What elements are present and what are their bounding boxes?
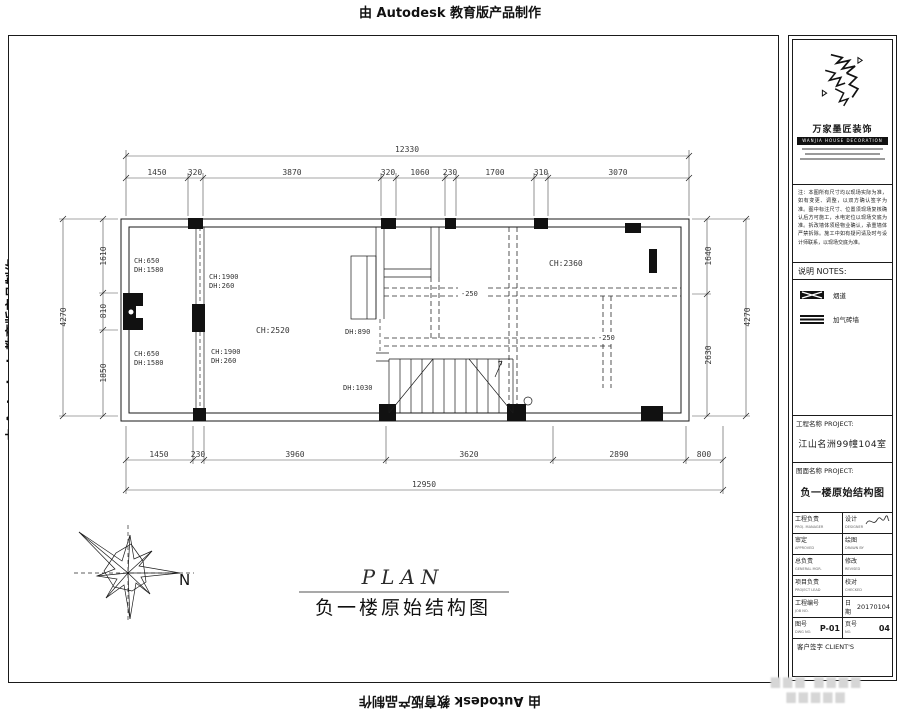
company-logo (811, 45, 875, 117)
dim-top-seg: 3870 (282, 168, 301, 177)
dim-top-seg: 320 (381, 168, 396, 177)
cell-label: 项目负责 (795, 577, 821, 586)
dim-left-seg: 1610 (99, 246, 108, 265)
project-name-value: 江山名洲99幢104室 (793, 437, 892, 450)
table-row: 项目负责PROJECT LEAD 校对CHECKED (793, 576, 892, 597)
table-row: 总负责GENERAL MGR. 修改REVISED (793, 555, 892, 576)
cell-label: 绘图 (845, 535, 864, 544)
client-signature-row: 客户签字 CLIENT'S (793, 639, 892, 676)
cell-sublabel: NO. (845, 630, 857, 634)
drawing-caption: PLAN 负一楼原始结构图 (299, 565, 509, 619)
edu-banner-top: 由 Autodesk 教育版产品制作 (0, 2, 900, 21)
company-address-line (805, 153, 880, 155)
legend-panel: 烟道 加气砖墙 (793, 280, 892, 416)
dim-right-seg: 2630 (704, 345, 713, 364)
cell-sublabel: PROJ. MANAGER (795, 525, 823, 529)
cell-sublabel: PROJECT LEAD (795, 588, 821, 592)
cell-sublabel: APPROVED (795, 546, 814, 550)
cell-label: 工程编号 (795, 598, 819, 607)
cell-dwg-no: 图号DWG NO. P-01 (793, 618, 842, 638)
dim-bottom-seg: 1450 (149, 450, 168, 459)
cell-sublabel: DWG NO. (795, 630, 811, 634)
company-logo-panel: 万家墨匠装饰 WANJIA HOUSE DECORATION (793, 40, 892, 185)
title-block: 万家墨匠装饰 WANJIA HOUSE DECORATION 注：本图所有尺寸均… (788, 35, 897, 681)
cell-proj-manager: 工程负责PROJ. MANAGER (793, 513, 842, 533)
cell-sublabel: GENERAL MGR. (795, 567, 822, 571)
cell-project-lead: 项目负责PROJECT LEAD (793, 576, 842, 596)
cell-label: 审定 (795, 535, 814, 544)
caption-plan: PLAN (361, 565, 445, 589)
dimension-left: 1610 810 1850 4270 (59, 216, 118, 419)
cell-designer: 设计DESIGNER (842, 513, 892, 533)
label-left-window-top2: DH:1580 (134, 266, 164, 274)
table-row: 图号DWG NO. P-01 页号NO. 04 (793, 618, 892, 639)
dim-right-overall: 4270 (743, 307, 752, 326)
cell-checked: 校对CHECKED (842, 576, 892, 596)
notes-paragraph: 注：本图所有尺寸均以现场实际为准，如有变更、调整，以双方确认签字为准。图中标注尺… (793, 185, 892, 263)
cell-page-no: 页号NO. 04 (842, 618, 892, 638)
sheet-name-label: 图面名称 PROJECT: (793, 463, 892, 475)
columns (188, 218, 663, 421)
dim-right-seg: 1640 (704, 246, 713, 265)
page-no-value: 04 (879, 624, 890, 633)
cell-label: 校对 (845, 577, 862, 586)
dimension-bottom: 1450 230 3960 3620 2890 800 12950 (123, 426, 726, 494)
legend-label: 烟道 (833, 290, 846, 300)
label-level-a: -250 (461, 290, 478, 298)
company-banner: WANJIA HOUSE DECORATION (797, 137, 888, 145)
north-label: N (179, 571, 190, 589)
faint-watermark-line: ▆▆▆ ▆▆▆▆ (738, 674, 896, 689)
cell-approved: 审定APPROVED (793, 534, 842, 554)
cell-sublabel: JOB NO. (795, 609, 819, 613)
cell-label: 日期 (845, 598, 857, 616)
dim-left-seg: 1850 (99, 363, 108, 382)
flue-symbol-icon (800, 291, 826, 300)
dim-top-seg: 230 (443, 168, 458, 177)
dim-top-seg: 1060 (410, 168, 429, 177)
label-mid-wall-top: CH:1900 (209, 273, 239, 281)
cell-date: 日期DATE 20170104 (842, 597, 892, 617)
cell-job-no: 工程编号JOB NO. (793, 597, 842, 617)
dim-bottom-seg: 2890 (609, 450, 628, 459)
label-right-room-height: CH:2360 (549, 259, 583, 268)
interior-walls (196, 227, 439, 413)
sheet-name-panel: 图面名称 PROJECT: 负一楼原始结构图 (793, 463, 892, 513)
cell-drawn-by: 绘图DRAWN BY (842, 534, 892, 554)
date-value: 20170104 (857, 603, 890, 611)
dim-bottom-seg: 3620 (459, 450, 478, 459)
label-door-height-b: DH:1030 (343, 384, 373, 392)
dimension-right: 1640 2630 4270 (692, 216, 752, 419)
label-door-height-a: DH:890 (345, 328, 370, 336)
label-mid-wall-bottom2: DH:260 (211, 357, 236, 365)
sheet-name-value: 负一楼原始结构图 (793, 484, 892, 499)
faint-watermark: ▆▆▆ ▆▆▆▆ ▆▆▆▆▆ (738, 674, 896, 704)
cell-label: 修改 (845, 556, 860, 565)
title-block-inner: 万家墨匠装饰 WANJIA HOUSE DECORATION 注：本图所有尺寸均… (792, 39, 893, 677)
drawing-sheet: 12330 1450 320 3870 320 1060 230 1700 31… (8, 35, 779, 683)
label-left-window-bottom: CH:650 (134, 350, 159, 358)
legend-item-flue: 烟道 (800, 290, 885, 300)
company-address-line (802, 148, 883, 150)
table-row: 工程负责PROJ. MANAGER 设计DESIGNER (793, 513, 892, 534)
floor-plan-svg: 12330 1450 320 3870 320 1060 230 1700 31… (9, 36, 778, 682)
cell-label: 设计 (845, 514, 863, 523)
block-wall-symbol-icon (800, 315, 826, 324)
dim-bottom-seg: 800 (697, 450, 712, 459)
dim-top-overall: 12330 (395, 145, 419, 154)
company-address-line (800, 158, 885, 160)
notes-header: 说明 NOTES: (793, 263, 892, 280)
cell-label: 工程负责 (795, 514, 823, 523)
dim-top-seg: 1700 (485, 168, 504, 177)
label-main-room-height: CH:2520 (256, 326, 290, 335)
dim-bottom-seg: 3960 (285, 450, 304, 459)
faint-watermark-line: ▆▆▆▆▆ (738, 689, 896, 704)
label-mid-wall-bottom: CH:1900 (211, 348, 241, 356)
cell-sublabel: REVISED (845, 567, 860, 571)
label-left-window-bottom2: DH:1580 (134, 359, 164, 367)
outer-walls (121, 219, 689, 421)
dim-bottom-seg: 230 (191, 450, 206, 459)
label-mid-wall-top2: DH:260 (209, 282, 234, 290)
dimension-top: 12330 1450 320 3870 320 1060 230 1700 31… (123, 145, 692, 216)
table-row: 审定APPROVED 绘图DRAWN BY (793, 534, 892, 555)
designer-signature (864, 514, 890, 529)
cell-revised: 修改REVISED (842, 555, 892, 575)
project-name-panel: 工程名称 PROJECT: 江山名洲99幢104室 (793, 416, 892, 463)
project-name-label: 工程名称 PROJECT: (793, 416, 892, 428)
cell-label: 总负责 (795, 556, 822, 565)
room-labels: CH:650 DH:1580 CH:650 DH:1580 CH:1900 DH… (134, 257, 622, 392)
left-flue (123, 293, 143, 330)
cell-sublabel: DRAWN BY (845, 546, 864, 550)
signature-table: 工程负责PROJ. MANAGER 设计DESIGNER 审定APPROVED … (793, 513, 892, 639)
dim-left-overall: 4270 (59, 307, 68, 326)
dim-top-seg: 320 (188, 168, 203, 177)
company-name: 万家墨匠装饰 (793, 122, 892, 135)
compass-rose: N (74, 525, 194, 621)
legend-label: 加气砖墙 (833, 314, 859, 324)
cell-label: 图号 (795, 619, 811, 628)
dim-top-seg: 3070 (608, 168, 627, 177)
cell-sublabel: DESIGNER (845, 525, 863, 529)
legend-item-block-wall: 加气砖墙 (800, 314, 885, 324)
dim-top-seg: 1450 (147, 168, 166, 177)
cell-general-manager: 总负责GENERAL MGR. (793, 555, 842, 575)
right-flue (649, 249, 657, 273)
overhead-beams (384, 227, 681, 404)
caption-title-cn: 负一楼原始结构图 (315, 597, 491, 619)
label-level-b: -250 (598, 334, 615, 342)
dim-top-seg: 310 (534, 168, 549, 177)
label-left-window-top: CH:650 (134, 257, 159, 265)
cell-sublabel: CHECKED (845, 588, 862, 592)
table-row: 工程编号JOB NO. 日期DATE 20170104 (793, 597, 892, 618)
dwg-no-value: P-01 (820, 624, 840, 633)
cell-label: 页号 (845, 619, 857, 628)
dim-left-seg: 810 (99, 304, 108, 319)
dim-bottom-overall: 12950 (412, 480, 436, 489)
